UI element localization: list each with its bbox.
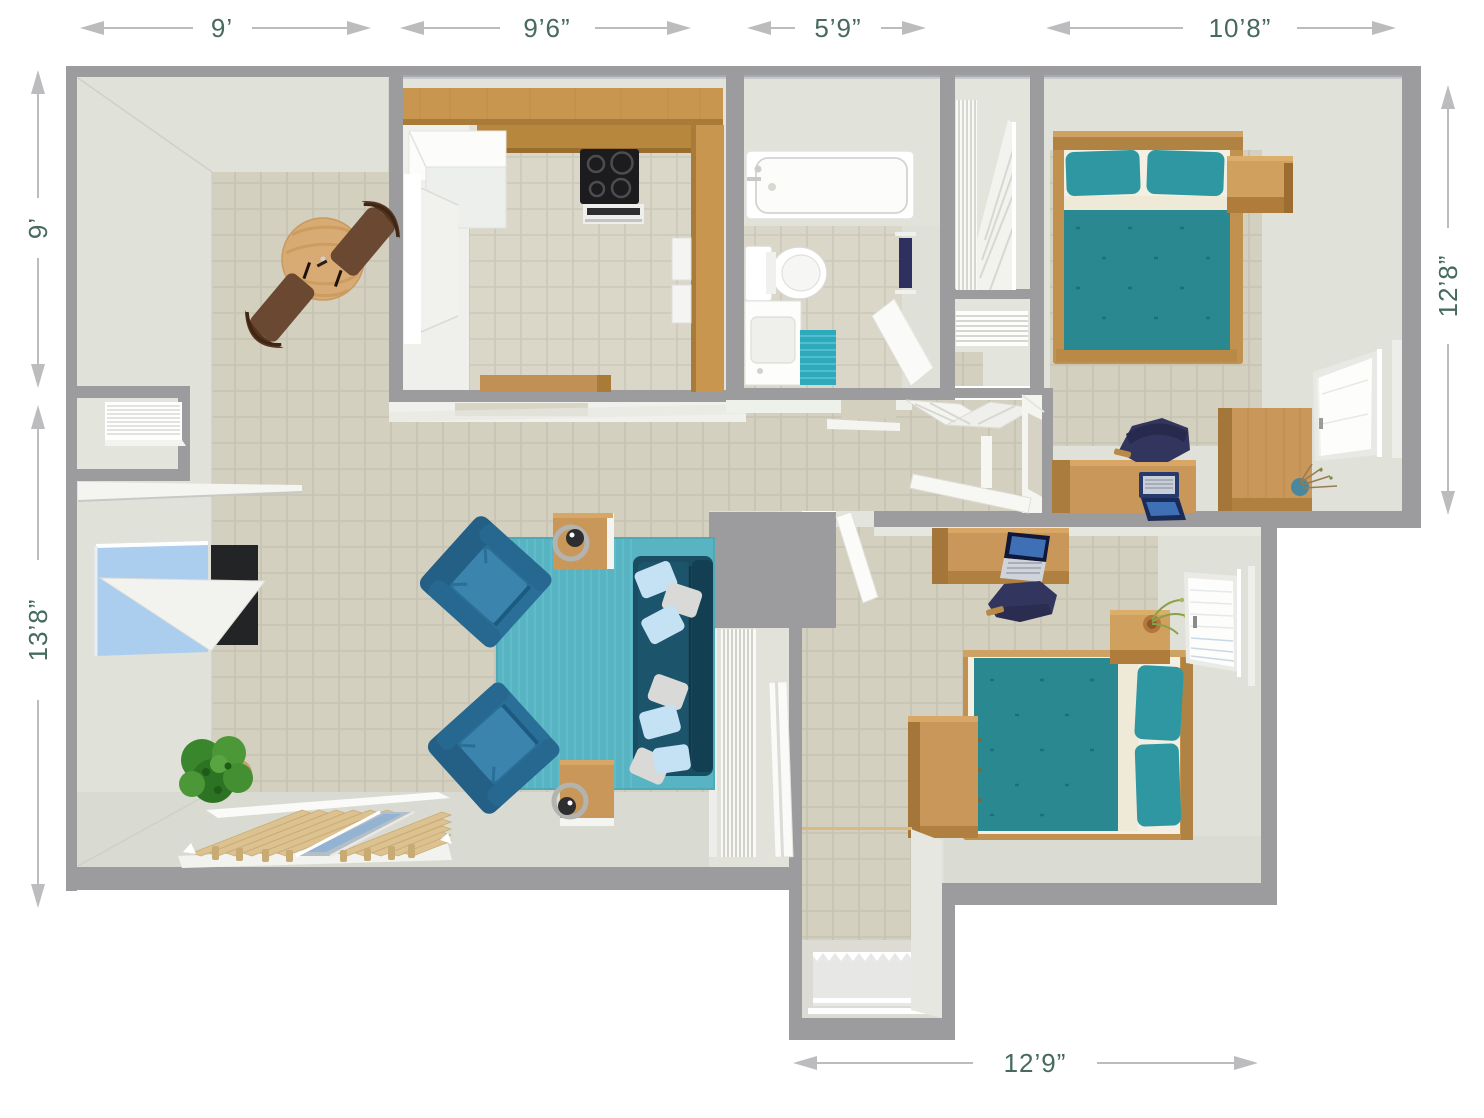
svg-text:13’8”: 13’8” <box>23 599 53 662</box>
svg-text:9’6”: 9’6” <box>523 13 570 43</box>
svg-text:12’9”: 12’9” <box>1004 1048 1067 1078</box>
svg-text:9’: 9’ <box>23 217 53 239</box>
svg-text:5’9”: 5’9” <box>814 13 861 43</box>
svg-text:10’8”: 10’8” <box>1209 13 1272 43</box>
svg-text:9’: 9’ <box>211 13 233 43</box>
svg-text:12’8”: 12’8” <box>1433 255 1463 318</box>
